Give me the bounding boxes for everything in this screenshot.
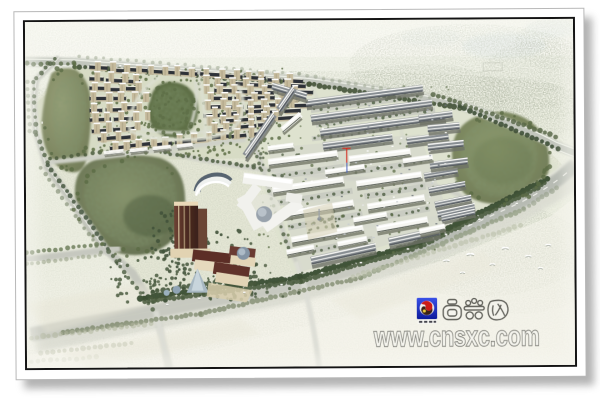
svg-text:www.cnsxc.com: www.cnsxc.com (373, 321, 540, 354)
